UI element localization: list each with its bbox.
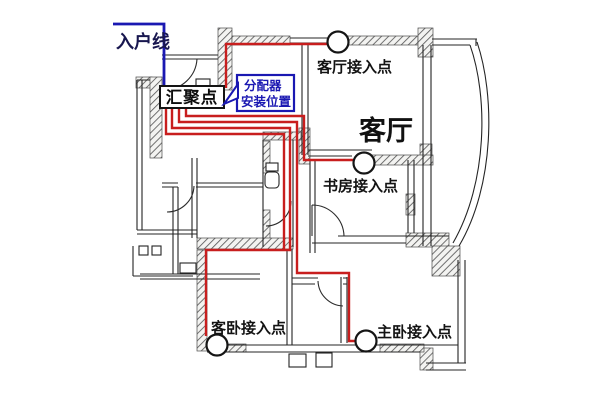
kitchen-door-arc [167,186,194,212]
meter-left [139,246,148,255]
distributor-label-line2: 安装位置 [241,94,292,109]
living-room-label: 客厅 [359,115,413,146]
wall-balcony-end [432,246,460,276]
access-point-study [354,153,375,174]
cable-guest-bedroom [172,108,290,336]
wall-balcony-curve [453,42,489,246]
kitchen-counter [180,263,196,273]
floorplan-canvas: 入户线 汇聚点 分配器 安装位置 客厅接入点 客厅 书房接入点 客卧接入点 主卧… [0,0,600,400]
study-door-arc [312,205,344,236]
wall-master-top-seg [406,233,449,247]
meter-right [152,246,161,255]
bath2-door-arc [318,281,343,306]
convergence-box-label: 汇聚点 [166,87,219,107]
master-ap-label: 主卧接入点 [377,323,452,341]
entry-line-label: 入户线 [116,31,170,52]
wall-stub-topleft [136,77,152,88]
distributor-label-line1: 分配器 [244,78,282,93]
access-point-guest-bedroom [207,335,228,356]
study-ap-label: 书房接入点 [323,177,398,195]
shower-tray [289,354,306,367]
distributor-callout: 分配器 安装位置 [224,75,294,111]
access-point-master-bedroom [356,331,377,352]
living-ap-label: 客厅接入点 [316,58,392,76]
bath2-step [316,353,332,367]
toilet-bowl [265,172,279,188]
convergence-box: 汇聚点 [160,86,224,108]
wall-living-bottom [372,155,433,165]
wall-top-b [348,36,418,45]
floorplan-diagram: 入户线 汇聚点 分配器 安装位置 客厅接入点 客厅 书房接入点 客卧接入点 主卧… [0,0,600,400]
toilet-tank [266,163,278,171]
wall-entry-threshold [162,55,218,59]
access-point-living-room [328,32,349,53]
guest-ap-label: 客卧接入点 [210,319,286,337]
wall-hall-band [197,238,293,249]
